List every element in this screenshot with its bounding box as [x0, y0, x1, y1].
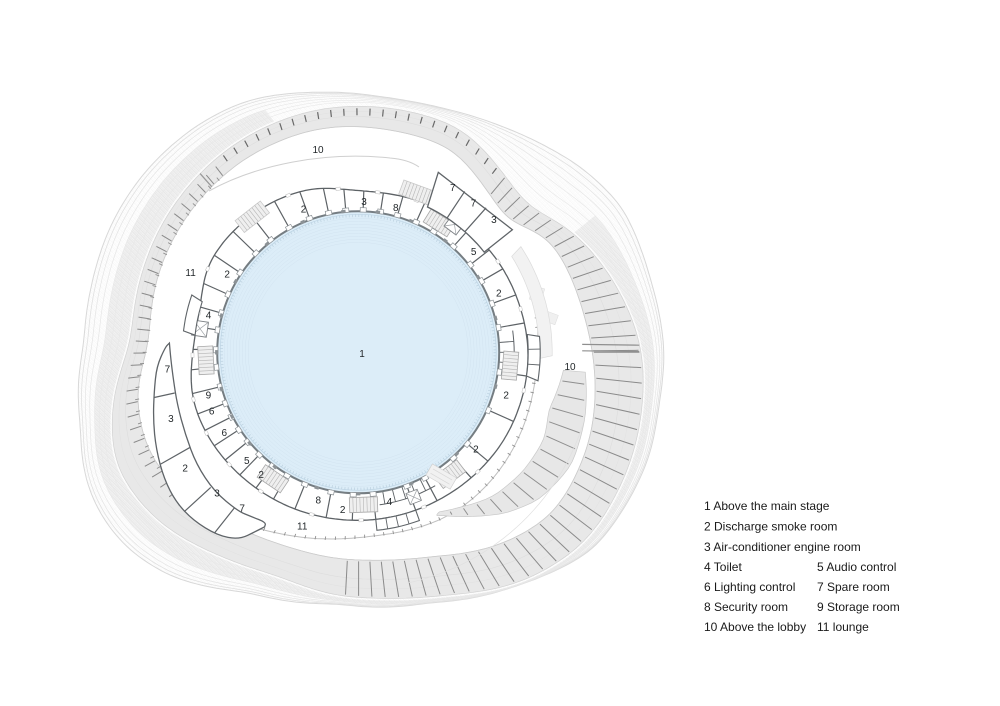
- svg-text:11 lounge: 11 lounge: [817, 620, 869, 634]
- svg-text:5: 5: [244, 456, 250, 467]
- svg-text:8 Security room: 8 Security room: [704, 600, 788, 614]
- svg-text:6 Lighting control: 6 Lighting control: [704, 580, 795, 594]
- svg-text:5: 5: [471, 247, 477, 258]
- svg-text:7: 7: [165, 364, 171, 375]
- svg-text:2: 2: [503, 390, 509, 401]
- svg-text:10: 10: [564, 362, 576, 373]
- svg-text:2: 2: [258, 470, 264, 481]
- svg-text:11: 11: [185, 268, 196, 279]
- svg-text:7: 7: [239, 504, 245, 515]
- svg-text:7: 7: [450, 183, 456, 194]
- svg-text:6: 6: [222, 428, 228, 439]
- svg-text:2: 2: [224, 270, 230, 281]
- svg-text:5 Audio control: 5 Audio control: [817, 560, 896, 574]
- svg-text:4: 4: [206, 311, 212, 322]
- svg-text:3: 3: [361, 197, 367, 208]
- svg-text:8: 8: [393, 203, 399, 214]
- svg-text:7: 7: [471, 199, 477, 210]
- svg-text:2 Discharge smoke room: 2 Discharge smoke room: [704, 520, 837, 534]
- svg-text:4 Toilet: 4 Toilet: [704, 560, 742, 574]
- svg-text:2: 2: [496, 289, 502, 300]
- svg-text:2: 2: [182, 464, 188, 475]
- svg-text:8: 8: [316, 496, 322, 507]
- svg-text:9: 9: [206, 390, 212, 401]
- svg-text:2: 2: [301, 205, 307, 216]
- svg-text:4: 4: [387, 497, 393, 508]
- svg-text:3: 3: [168, 414, 174, 425]
- svg-text:10 Above the lobby: 10 Above the lobby: [704, 620, 806, 634]
- svg-text:1: 1: [359, 349, 365, 360]
- svg-text:10: 10: [312, 145, 324, 156]
- svg-text:3 Air-conditioner engine room: 3 Air-conditioner engine room: [704, 540, 861, 554]
- svg-text:2: 2: [340, 505, 346, 516]
- svg-text:7 Spare room: 7 Spare room: [817, 580, 890, 594]
- svg-text:3: 3: [214, 488, 220, 499]
- svg-text:1 Above the main stage: 1 Above the main stage: [704, 499, 830, 513]
- svg-text:11: 11: [297, 522, 308, 533]
- svg-text:6: 6: [209, 407, 215, 418]
- svg-text:2: 2: [473, 445, 479, 456]
- svg-text:9 Storage room: 9 Storage room: [817, 600, 900, 614]
- svg-text:3: 3: [491, 215, 497, 226]
